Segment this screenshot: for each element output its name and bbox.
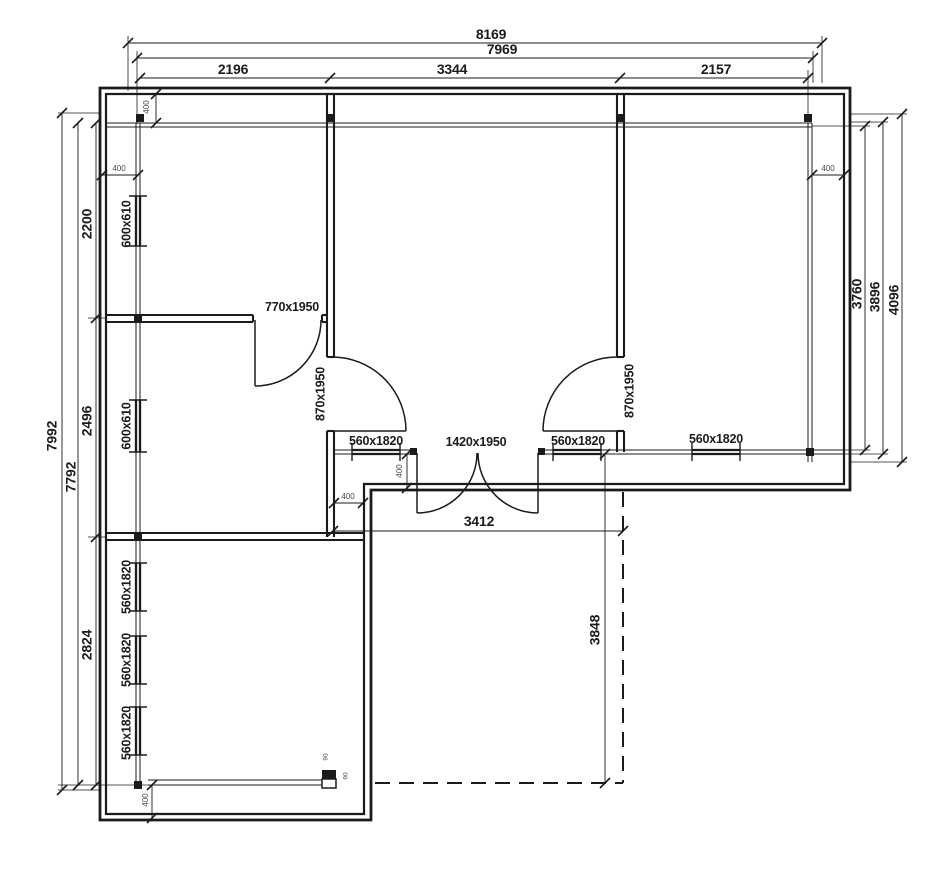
dim-top-overall: 8169: [476, 26, 507, 42]
dim-top-segment-1: 2196: [218, 61, 249, 77]
dim-right-wall-inner: 3896: [867, 281, 883, 312]
dim-offset-mid-bottom: 400: [395, 464, 404, 478]
dim-post-depth: 90: [343, 772, 350, 780]
dim-top-segment-3: 2157: [701, 61, 732, 77]
dim-top-sub-overall: 7969: [487, 41, 518, 57]
dim-offset-right: 400: [821, 164, 835, 173]
dim-offset-bottom-left: 400: [141, 793, 150, 807]
label-window-left-1: 560x1820: [119, 560, 133, 614]
floor-plan-drawing: 8169 7969 2196 3344 2157 7992 7792 2200 …: [0, 0, 943, 874]
label-small-window-1: 600x610: [119, 200, 133, 248]
dim-left-segment-1: 2200: [79, 208, 95, 239]
dim-offset-left: 400: [112, 164, 126, 173]
label-double-door: 1420x1950: [446, 435, 507, 449]
dim-left-segment-3: 2824: [79, 629, 95, 660]
label-small-window-2: 600x610: [119, 402, 133, 450]
dim-left-overall: 7992: [44, 420, 60, 451]
terrace-post: [322, 770, 336, 779]
dim-right-wall-outer: 4096: [886, 284, 902, 315]
label-interior-door: 770x1950: [265, 300, 319, 314]
floor-plan-page: 8169 7969 2196 3344 2157 7992 7792 2200 …: [0, 0, 943, 874]
label-window-left-2: 560x1820: [119, 633, 133, 687]
label-window-left-3: 560x1820: [119, 706, 133, 760]
label-window-right-room: 560x1820: [689, 432, 743, 446]
dim-left-sub-overall: 7792: [63, 461, 79, 492]
label-window-mid-left: 560x1820: [349, 434, 403, 448]
dimension-ticks: [57, 38, 907, 823]
windows: [129, 196, 740, 755]
dim-terrace-width: 3412: [464, 513, 495, 529]
label-room-door-right: 870x1950: [622, 364, 636, 418]
dim-left-segment-2: 2496: [79, 405, 95, 436]
interior-walls: [106, 94, 624, 540]
dim-post-width: 90: [323, 753, 330, 761]
dim-offset-top-left: 400: [142, 100, 151, 114]
posts: [134, 114, 814, 789]
dim-top-segment-2: 3344: [437, 61, 468, 77]
label-window-mid-right: 560x1820: [551, 434, 605, 448]
dim-terrace-depth: 3848: [587, 614, 603, 645]
dimension-lines: [58, 36, 907, 818]
label-room-door-left: 870x1950: [313, 367, 327, 421]
dim-offset-terrace-wall: 400: [341, 492, 355, 501]
labels: 8169 7969 2196 3344 2157 7992 7792 2200 …: [44, 26, 902, 807]
dim-right-window-span: 3760: [849, 278, 865, 309]
